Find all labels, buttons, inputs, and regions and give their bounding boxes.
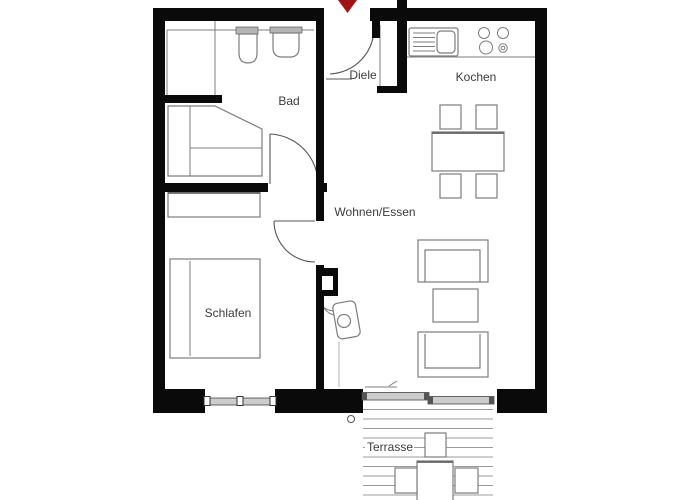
sliding-door-cap-1 bbox=[362, 393, 367, 401]
toilet-cistern bbox=[236, 27, 258, 34]
washbasin bbox=[273, 33, 299, 57]
sliding-door-panel-left bbox=[362, 393, 429, 401]
room-label-kochen: Kochen bbox=[456, 70, 497, 84]
terrace-chair-right bbox=[455, 468, 478, 493]
wall-left bbox=[153, 8, 165, 413]
wall-bottom-right bbox=[497, 389, 547, 413]
coffee-table bbox=[433, 289, 478, 322]
sliding-door-panel-right bbox=[428, 397, 494, 405]
terrace-chair-left bbox=[395, 468, 417, 493]
dining-chair-2 bbox=[476, 105, 497, 129]
wall-bottom-middle bbox=[275, 389, 363, 413]
dining-table bbox=[432, 132, 504, 171]
sliding-door-cap-3 bbox=[428, 397, 433, 405]
floorplan-canvas: Diele Bad Kochen Wohnen/Essen Schlafen T… bbox=[0, 0, 700, 500]
chimney-duct-flue bbox=[322, 276, 333, 290]
wall-shower-stub bbox=[163, 95, 222, 103]
wardrobe bbox=[168, 192, 260, 217]
floorplan-drawing: Diele Bad Kochen Wohnen/Essen Schlafen T… bbox=[0, 0, 700, 500]
sofa-1 bbox=[418, 240, 488, 282]
sliding-door-cap-4 bbox=[489, 397, 494, 405]
room-label-bad: Bad bbox=[278, 94, 299, 108]
window-cap-left bbox=[204, 397, 210, 406]
room-label-schlafen: Schlafen bbox=[205, 306, 252, 320]
wall-corridor-cap bbox=[316, 183, 327, 192]
dining-chair-1 bbox=[440, 105, 461, 129]
window-cap-middle bbox=[237, 397, 243, 406]
wall-bottom-left bbox=[153, 389, 205, 413]
sofa-2 bbox=[418, 332, 488, 377]
room-label-wohnen: Wohnen/Essen bbox=[334, 205, 415, 219]
terrace-chair-top bbox=[425, 433, 446, 457]
wall-top-right bbox=[370, 8, 547, 21]
dining-chair-4 bbox=[476, 174, 497, 198]
entry-jamb-stub bbox=[372, 21, 380, 38]
toilet-bowl bbox=[239, 34, 257, 63]
wall-top-left bbox=[153, 8, 324, 21]
wall-bath-bedroom bbox=[160, 183, 268, 192]
wall-hall-kitchen bbox=[397, 0, 407, 93]
room-label-terrasse: Terrasse bbox=[367, 440, 413, 454]
wall-hall-kitchen-foot bbox=[377, 86, 407, 93]
washbasin-shelf bbox=[270, 27, 302, 33]
dining-chair-3 bbox=[440, 174, 461, 198]
wall-right bbox=[535, 8, 547, 413]
room-label-diele: Diele bbox=[349, 68, 377, 82]
terrace-table bbox=[417, 461, 453, 500]
window-cap-right bbox=[270, 397, 276, 406]
